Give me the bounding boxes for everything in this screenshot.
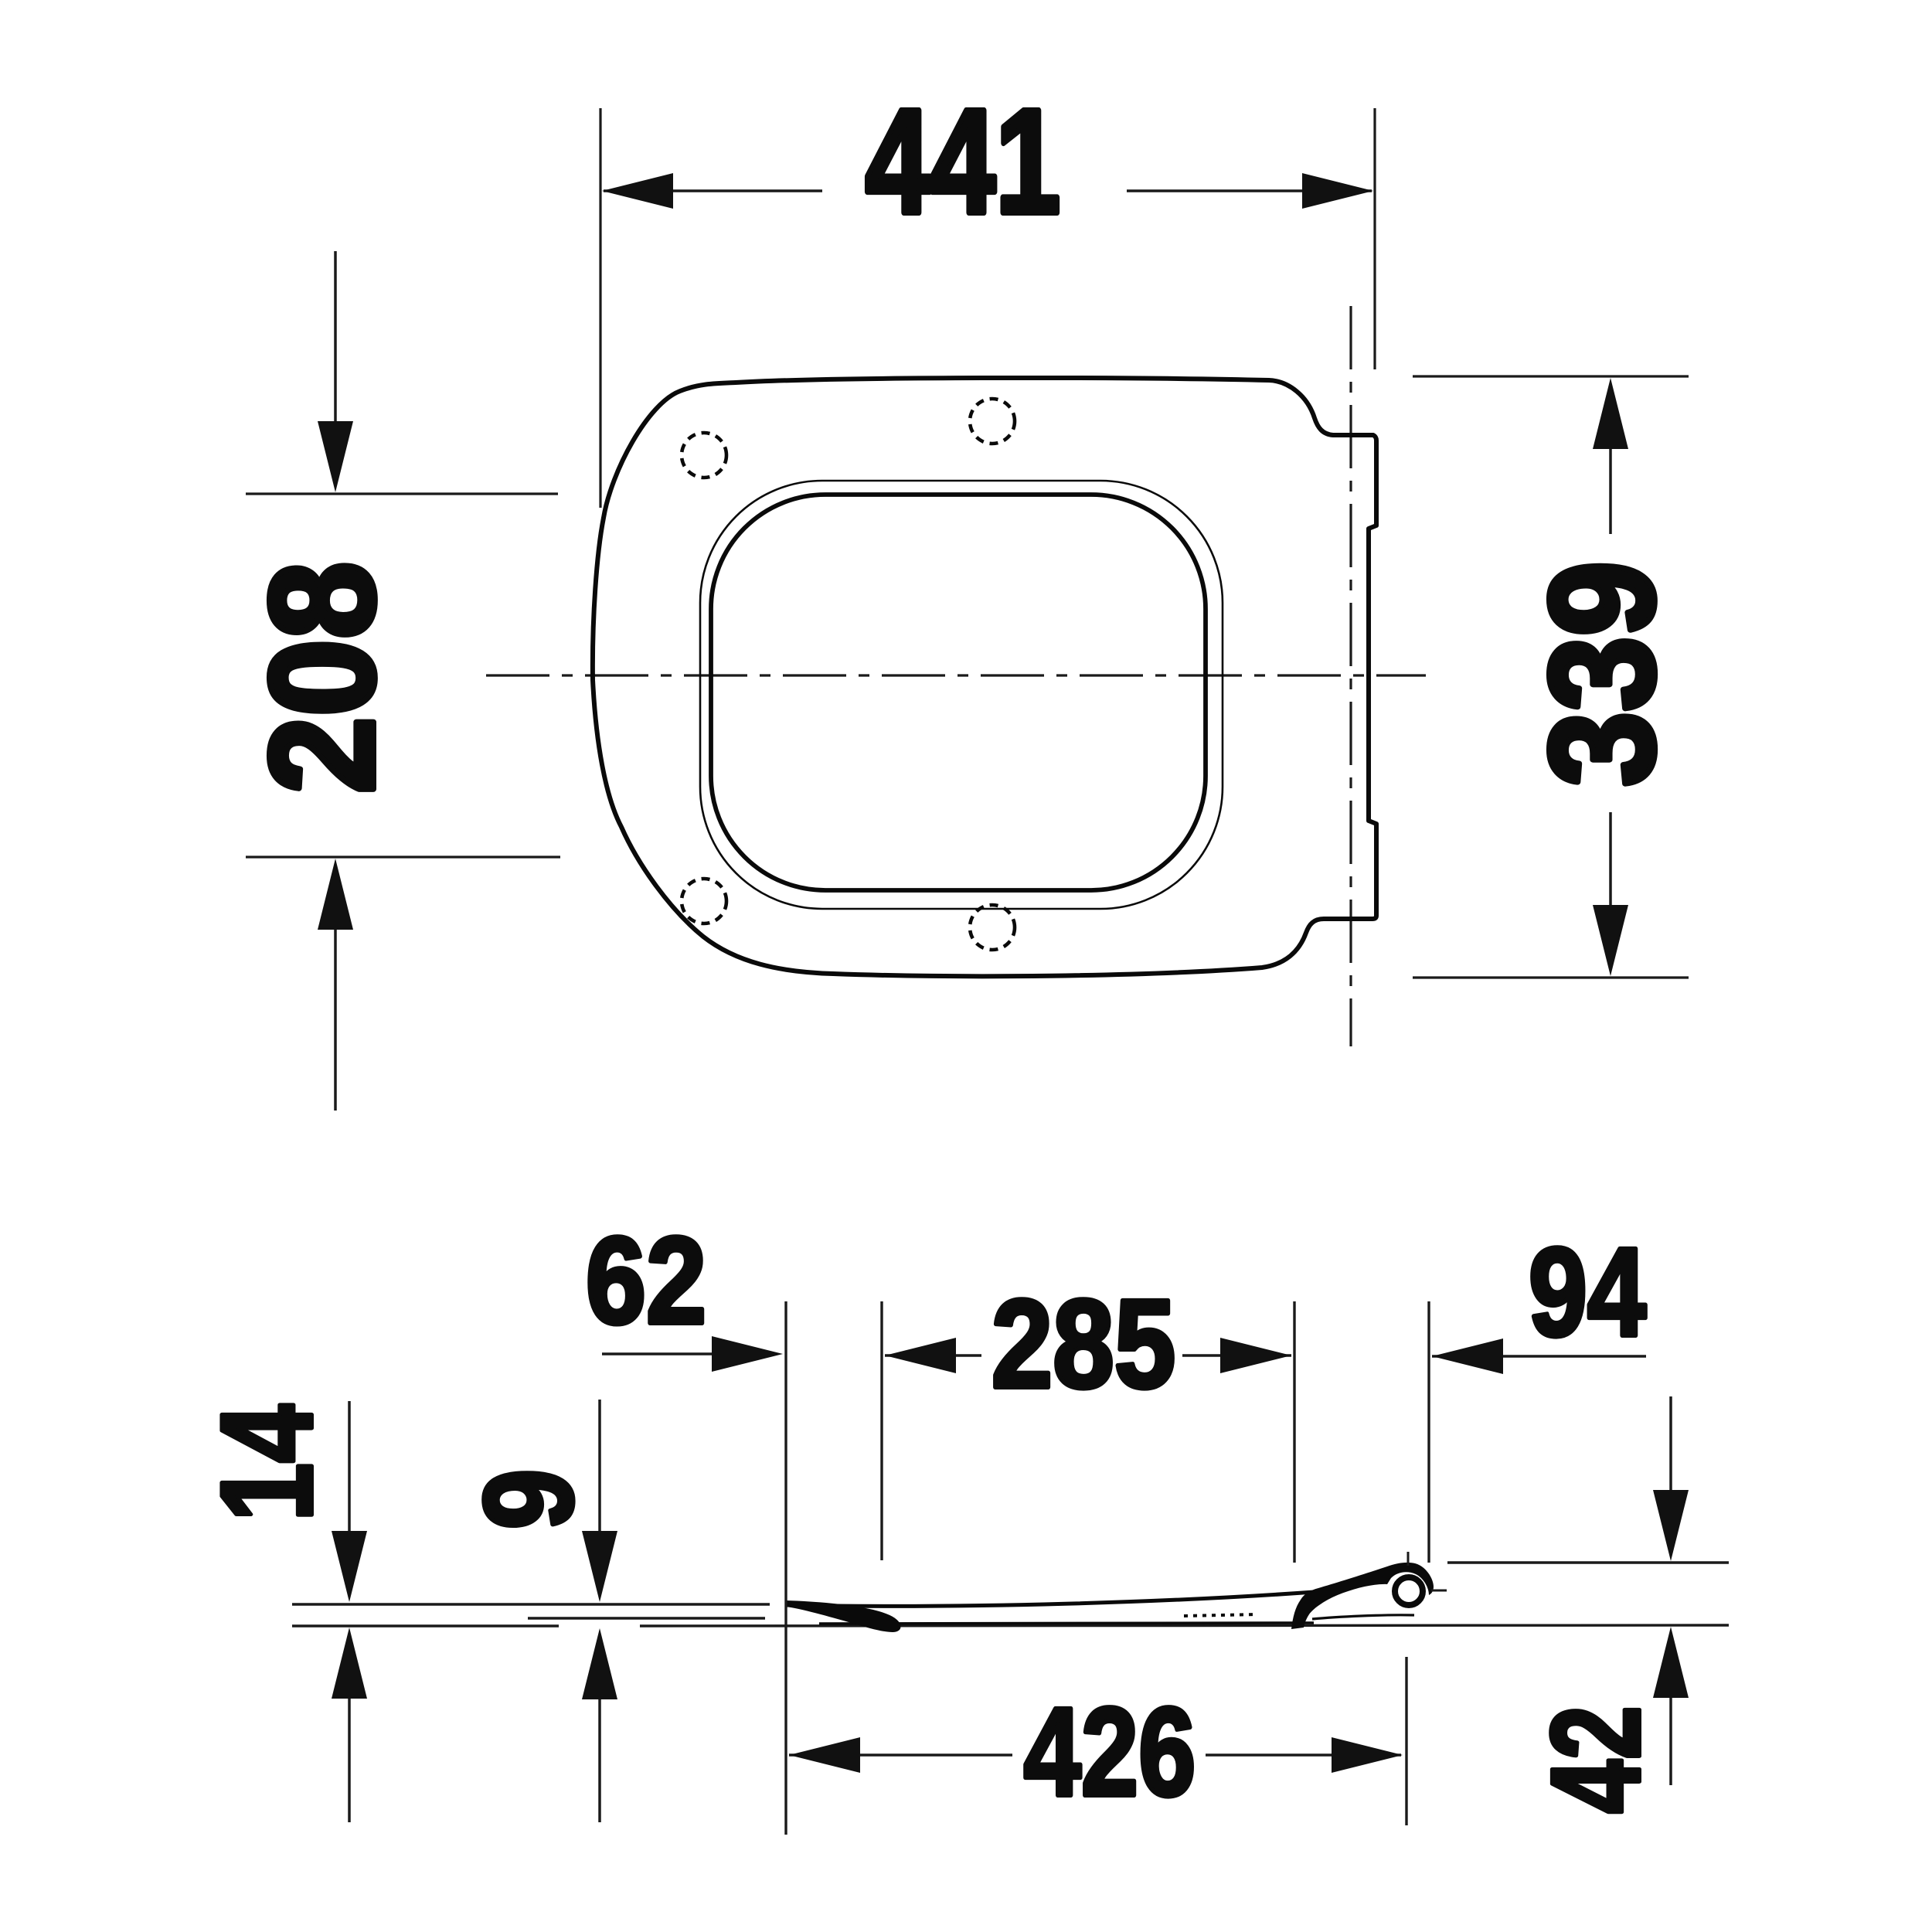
- svg-text:14: 14: [195, 1404, 340, 1522]
- svg-text:9: 9: [459, 1469, 600, 1530]
- svg-text:426: 426: [1024, 1681, 1196, 1822]
- svg-text:339: 339: [1519, 561, 1685, 787]
- svg-text:62: 62: [586, 1212, 706, 1349]
- svg-text:441: 441: [866, 79, 1060, 244]
- svg-text:94: 94: [1529, 1222, 1646, 1362]
- svg-text:285: 285: [992, 1274, 1176, 1414]
- svg-text:42: 42: [1525, 1706, 1666, 1814]
- svg-text:208: 208: [240, 562, 405, 794]
